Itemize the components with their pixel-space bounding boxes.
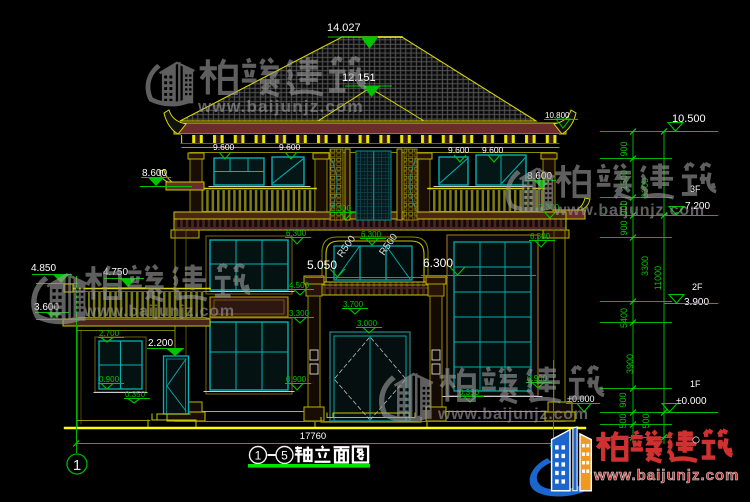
svg-text:6.300: 6.300 (361, 230, 382, 239)
svg-text:0.900: 0.900 (99, 375, 120, 384)
svg-text:3.900: 3.900 (684, 297, 709, 308)
svg-text:0.900: 0.900 (286, 375, 307, 384)
svg-text:7.300: 7.300 (331, 204, 352, 213)
svg-text:1: 1 (255, 449, 262, 463)
svg-text:3.700: 3.700 (343, 300, 364, 309)
svg-text:9.600: 9.600 (213, 142, 235, 152)
svg-text:2.700: 2.700 (99, 329, 120, 338)
svg-text:5400: 5400 (619, 308, 629, 328)
svg-text:2F: 2F (692, 282, 703, 292)
svg-text:500: 500 (618, 413, 628, 428)
svg-text:6.300: 6.300 (423, 256, 453, 270)
svg-text:5.050: 5.050 (307, 258, 337, 272)
svg-text:14.027: 14.027 (327, 22, 361, 34)
svg-text:500: 500 (641, 413, 651, 428)
svg-text:±0.000: ±0.000 (676, 396, 707, 407)
svg-text:9.600: 9.600 (448, 145, 470, 155)
svg-text:www.baijunjz.com: www.baijunjz.com (83, 303, 235, 320)
svg-text:6.300: 6.300 (530, 232, 551, 241)
svg-text:6.300: 6.300 (286, 229, 307, 238)
svg-text:17760: 17760 (300, 431, 326, 442)
svg-text:3900: 3900 (625, 354, 635, 374)
svg-text:0.350: 0.350 (125, 390, 146, 399)
svg-text:1: 1 (73, 457, 81, 474)
svg-text:0.350: 0.350 (459, 388, 480, 397)
svg-text:4.500: 4.500 (289, 281, 310, 290)
svg-text:5: 5 (281, 449, 288, 463)
svg-text:3.000: 3.000 (357, 319, 378, 328)
svg-text:11000: 11000 (653, 266, 663, 290)
svg-text:900: 900 (618, 392, 628, 407)
svg-text:9.600: 9.600 (482, 145, 504, 155)
svg-text:3300: 3300 (640, 256, 650, 276)
svg-text:www.baijunjz.com: www.baijunjz.com (553, 202, 705, 219)
svg-text:www.baijunjz.com: www.baijunjz.com (197, 97, 364, 116)
svg-text:900: 900 (619, 141, 629, 156)
svg-text:4.850: 4.850 (31, 263, 56, 274)
svg-text:1F: 1F (690, 379, 701, 389)
svg-text:www.baijunjz.com: www.baijunjz.com (437, 406, 589, 423)
svg-text:3.300: 3.300 (289, 309, 310, 318)
svg-text:10.500: 10.500 (672, 113, 706, 125)
svg-text:www.baijunjz.com: www.baijunjz.com (593, 467, 739, 484)
svg-text:9.600: 9.600 (279, 142, 301, 152)
svg-text:900: 900 (619, 220, 629, 235)
svg-text:2.200: 2.200 (148, 338, 173, 349)
